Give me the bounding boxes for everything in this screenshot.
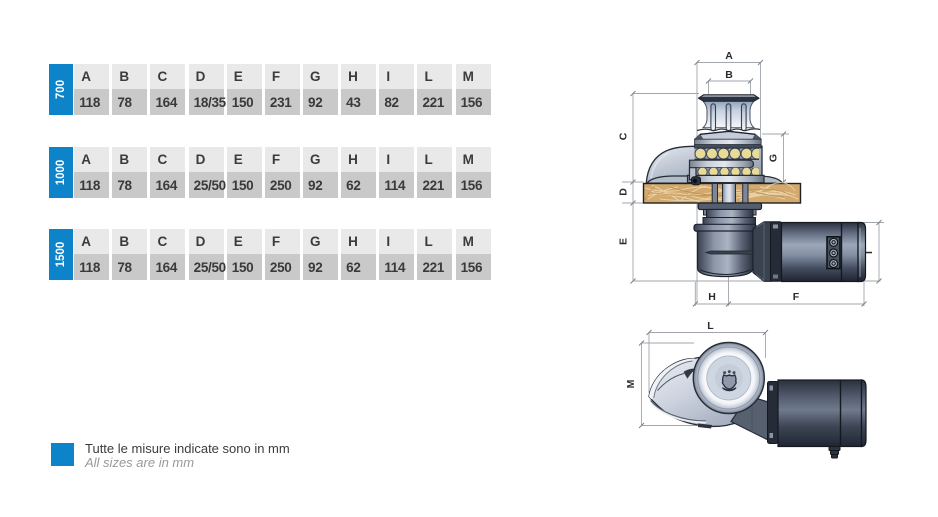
svg-text:F: F bbox=[793, 291, 800, 303]
svg-text:D: D bbox=[618, 188, 630, 196]
svg-text:L: L bbox=[707, 320, 714, 332]
svg-text:M: M bbox=[625, 379, 637, 388]
svg-text:B: B bbox=[725, 69, 733, 81]
svg-text:A: A bbox=[725, 50, 733, 62]
svg-text:H: H bbox=[708, 291, 716, 303]
svg-text:E: E bbox=[618, 238, 630, 245]
svg-text:C: C bbox=[618, 132, 630, 140]
svg-text:G: G bbox=[768, 154, 780, 162]
